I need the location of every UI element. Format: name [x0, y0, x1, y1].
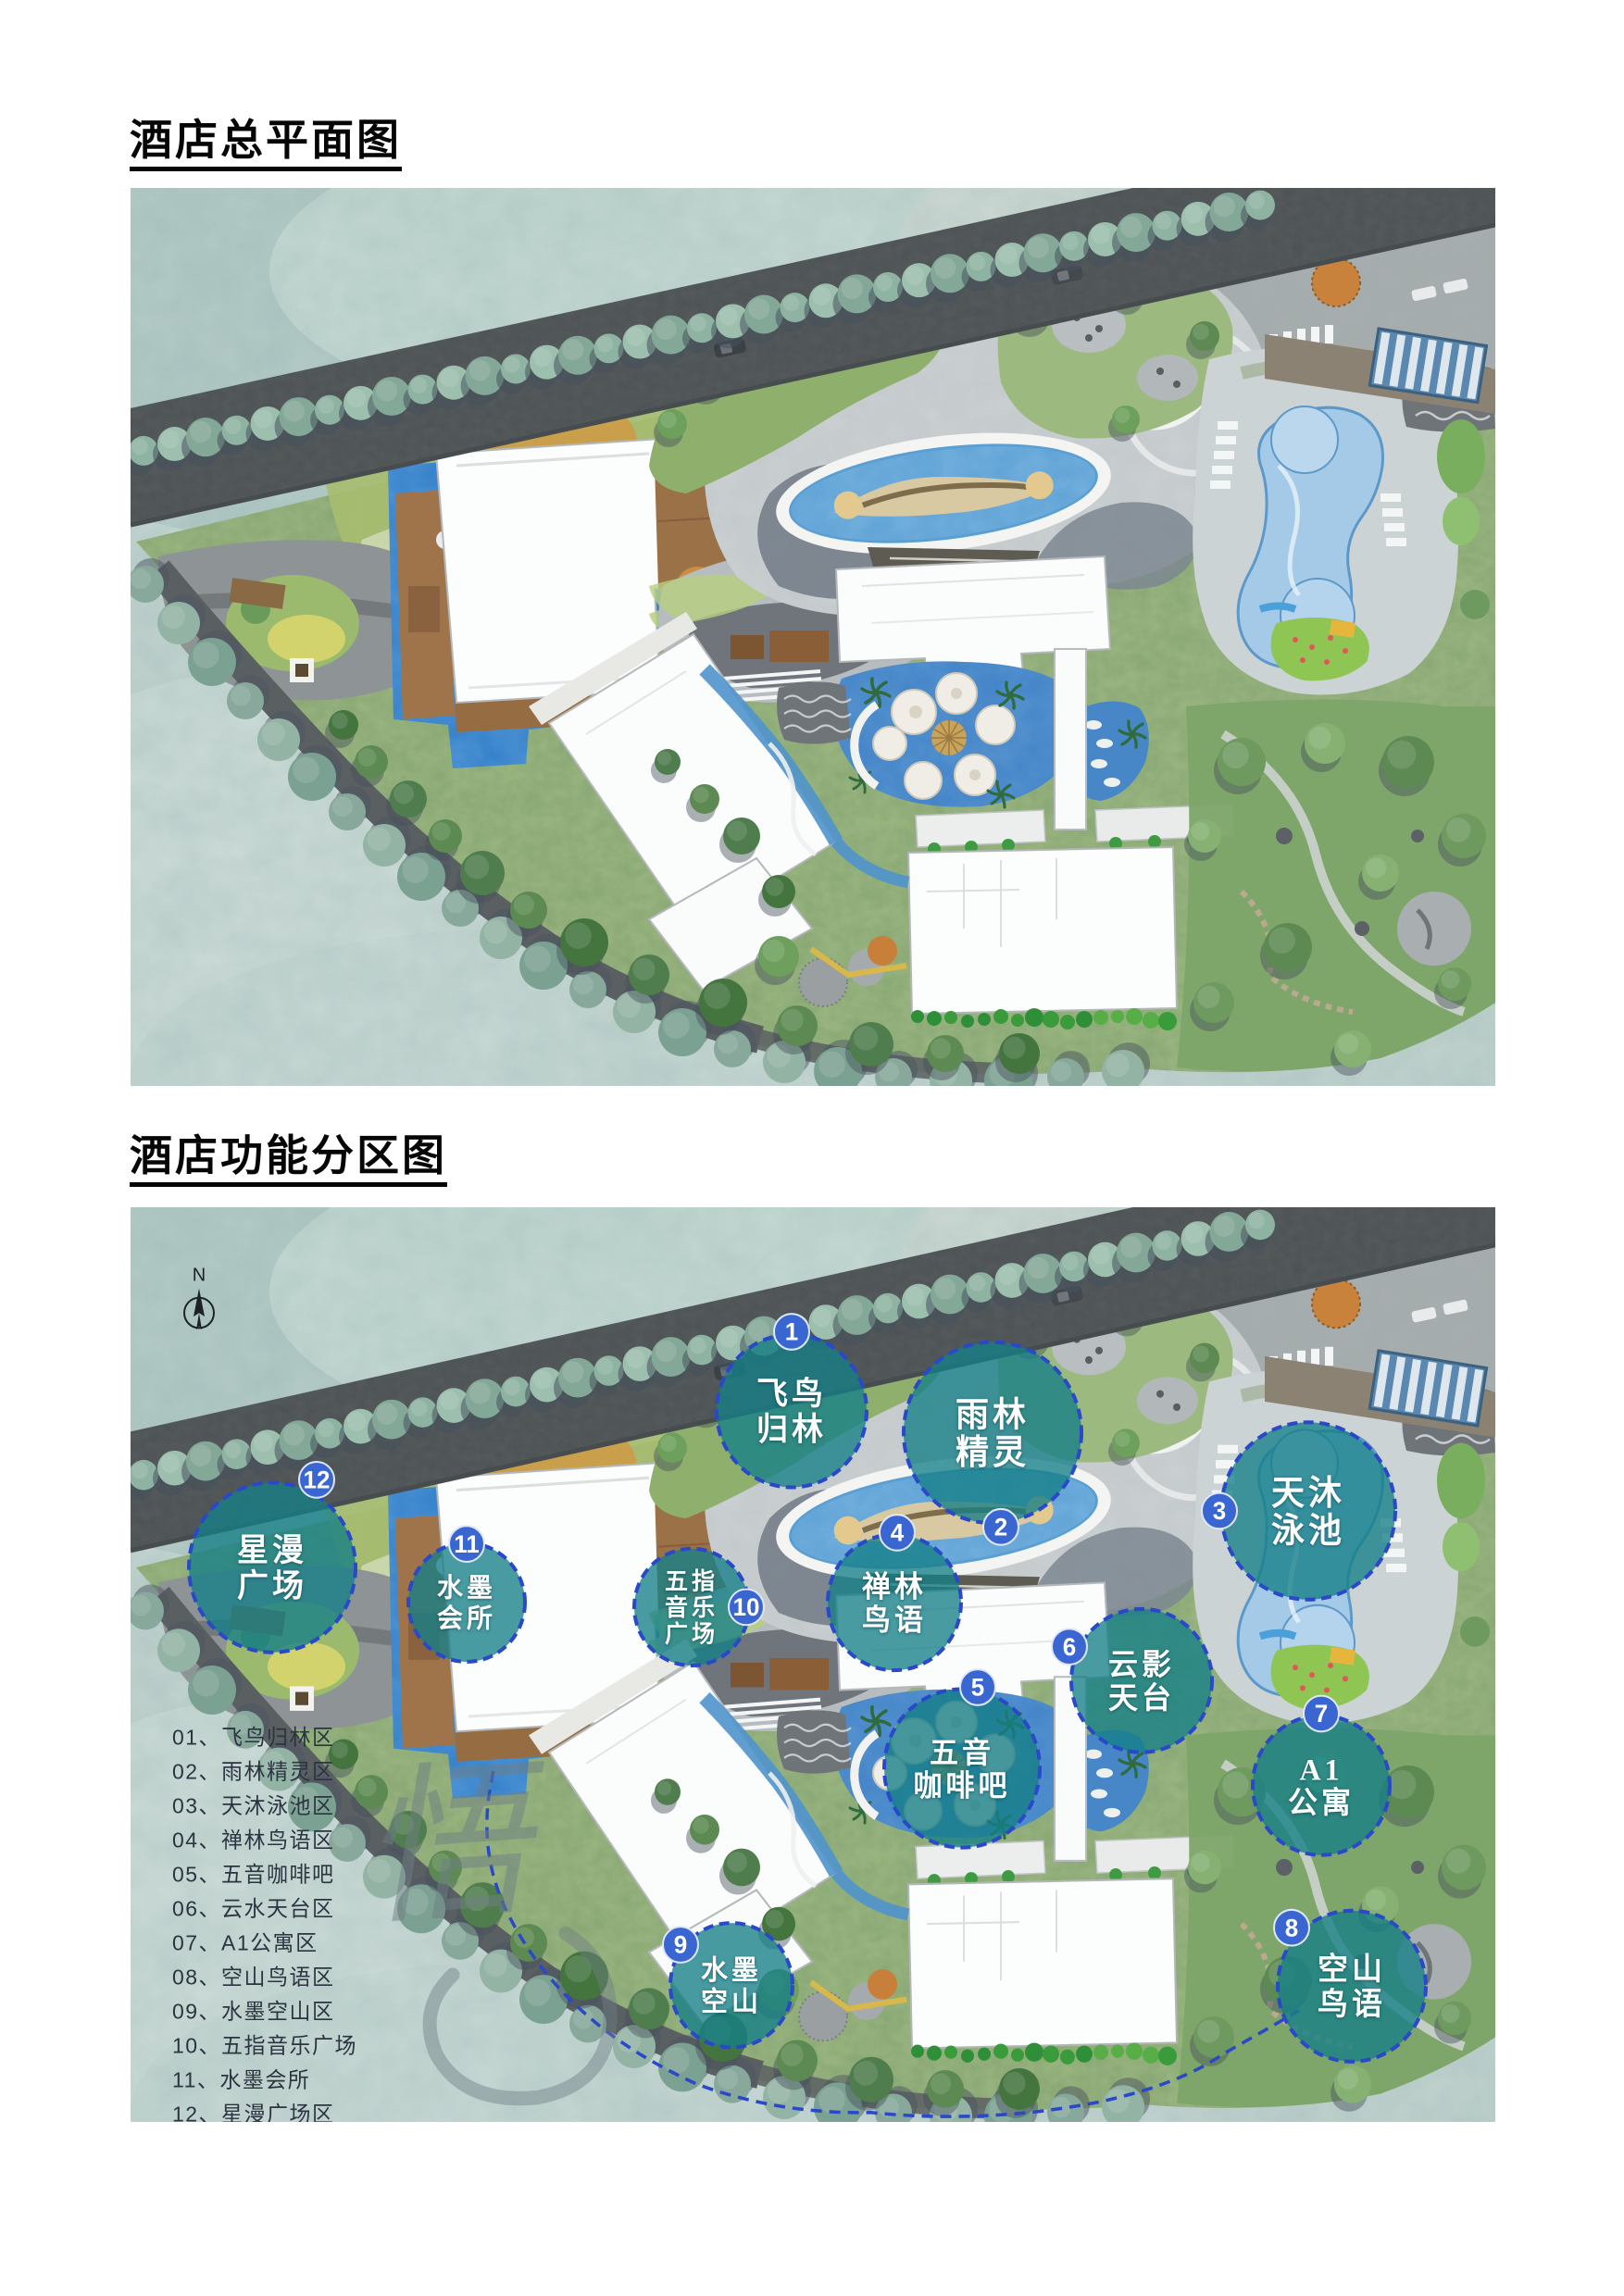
svg-text:会所: 会所 — [437, 1603, 496, 1633]
svg-text:02、雨林精灵区: 02、雨林精灵区 — [172, 1759, 335, 1783]
svg-text:咖啡吧: 咖啡吧 — [914, 1769, 1011, 1802]
svg-text:8: 8 — [1285, 1914, 1298, 1941]
svg-text:天沐: 天沐 — [1271, 1475, 1345, 1512]
svg-text:公寓: 公寓 — [1288, 1786, 1355, 1819]
svg-text:1: 1 — [785, 1317, 798, 1345]
svg-text:04、禅林鸟语区: 04、禅林鸟语区 — [172, 1828, 335, 1852]
svg-text:雨林: 雨林 — [956, 1396, 1030, 1433]
svg-text:12、星漫广场区: 12、星漫广场区 — [172, 2102, 335, 2122]
svg-text:精灵: 精灵 — [956, 1434, 1030, 1471]
svg-text:10、五指音乐广场: 10、五指音乐广场 — [172, 2033, 357, 2057]
svg-text:9: 9 — [674, 1930, 687, 1958]
svg-text:云影: 云影 — [1108, 1648, 1175, 1681]
svg-text:音乐: 音乐 — [665, 1594, 718, 1621]
svg-text:05、五音咖啡吧: 05、五音咖啡吧 — [172, 1862, 335, 1886]
svg-text:01、飞鸟归林区: 01、飞鸟归林区 — [172, 1725, 335, 1749]
svg-text:飞鸟: 飞鸟 — [756, 1377, 827, 1412]
svg-text:12: 12 — [304, 1466, 331, 1493]
svg-text:09、水墨空山区: 09、水墨空山区 — [172, 1999, 335, 2023]
svg-text:3: 3 — [1213, 1497, 1226, 1525]
svg-text:泳池: 泳池 — [1271, 1512, 1345, 1549]
svg-text:广场: 广场 — [237, 1568, 307, 1603]
svg-text:5: 5 — [971, 1673, 984, 1701]
svg-text:6: 6 — [1063, 1633, 1076, 1661]
svg-text:7: 7 — [1315, 1700, 1328, 1728]
svg-text:归林: 归林 — [756, 1412, 827, 1447]
svg-text:水墨: 水墨 — [701, 1955, 762, 1986]
svg-text:天台: 天台 — [1108, 1681, 1175, 1715]
svg-text:禅林: 禅林 — [862, 1570, 927, 1603]
svg-text:03、天沐泳池区: 03、天沐泳池区 — [172, 1793, 335, 1817]
svg-text:06、云水天台区: 06、云水天台区 — [172, 1896, 335, 1920]
svg-text:星漫: 星漫 — [237, 1533, 307, 1568]
svg-text:空山: 空山 — [701, 1987, 762, 2017]
svg-text:11、水墨会所: 11、水墨会所 — [172, 2067, 310, 2091]
svg-text:五指: 五指 — [665, 1568, 718, 1594]
svg-text:五音: 五音 — [930, 1736, 994, 1769]
svg-text:鸟语: 鸟语 — [862, 1603, 927, 1636]
svg-text:07、A1公寓区: 07、A1公寓区 — [172, 1930, 319, 1954]
svg-text:鸟语: 鸟语 — [1318, 1988, 1386, 2022]
svg-text:2: 2 — [994, 1513, 1007, 1541]
svg-text:10: 10 — [733, 1593, 760, 1621]
svg-text:空山: 空山 — [1318, 1953, 1386, 1987]
svg-text:4: 4 — [891, 1518, 905, 1546]
svg-text:A1: A1 — [1299, 1753, 1343, 1786]
svg-text:N: N — [193, 1265, 206, 1285]
svg-text:08、空山鸟语区: 08、空山鸟语区 — [172, 1965, 335, 1989]
svg-text:广场: 广场 — [665, 1620, 718, 1647]
svg-text:11: 11 — [454, 1530, 479, 1558]
svg-text:水墨: 水墨 — [437, 1573, 496, 1603]
